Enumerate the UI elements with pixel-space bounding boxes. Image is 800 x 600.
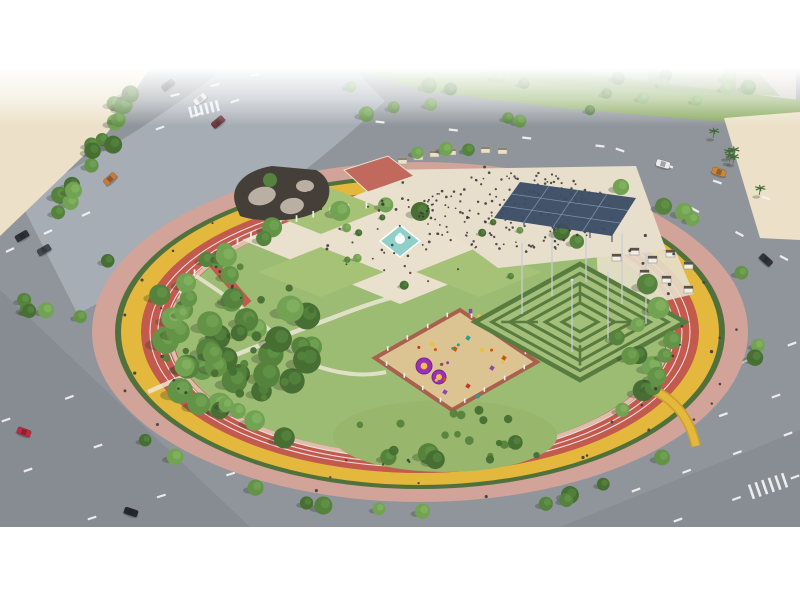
person-figure bbox=[211, 222, 213, 224]
person-figure bbox=[493, 236, 495, 238]
person-figure bbox=[480, 183, 482, 185]
tree-highlight bbox=[237, 327, 245, 335]
tree-highlight bbox=[263, 365, 276, 378]
person-figure bbox=[401, 181, 404, 184]
colonnade-post bbox=[250, 232, 252, 239]
person-figure bbox=[470, 176, 472, 178]
person-figure bbox=[307, 191, 310, 194]
playground-fence-post bbox=[446, 313, 448, 318]
tree-highlight bbox=[481, 230, 485, 234]
person-figure bbox=[423, 200, 425, 202]
person-figure bbox=[173, 379, 176, 382]
bush bbox=[211, 369, 219, 377]
person-figure bbox=[466, 235, 468, 237]
person-figure bbox=[427, 223, 429, 225]
tree-highlight bbox=[564, 495, 571, 502]
person-figure bbox=[463, 188, 466, 191]
light-pole-head bbox=[571, 279, 574, 282]
bush bbox=[504, 415, 512, 423]
person-figure bbox=[550, 182, 552, 184]
person-figure bbox=[711, 402, 713, 404]
person-figure bbox=[581, 456, 584, 459]
person-figure bbox=[508, 178, 510, 180]
child-figure bbox=[434, 348, 437, 351]
market-stall-roof bbox=[498, 148, 507, 150]
person-figure bbox=[491, 211, 493, 213]
person-figure bbox=[495, 243, 497, 245]
child-figure bbox=[417, 346, 420, 349]
person-figure bbox=[702, 281, 705, 284]
tree-highlight bbox=[210, 346, 220, 356]
person-figure bbox=[407, 255, 410, 258]
person-figure bbox=[554, 240, 557, 243]
tree-highlight bbox=[157, 287, 168, 298]
playground-fence-post bbox=[504, 376, 506, 381]
playground-fence-post bbox=[523, 365, 525, 370]
person-figure bbox=[495, 188, 497, 190]
tree-highlight bbox=[575, 236, 582, 243]
person-figure bbox=[401, 197, 404, 200]
playground-fence-post bbox=[403, 373, 405, 378]
person-figure bbox=[404, 265, 406, 267]
tree-highlight bbox=[544, 499, 551, 506]
person-figure bbox=[466, 232, 468, 234]
bush bbox=[450, 409, 458, 417]
tree-highlight bbox=[636, 320, 643, 327]
person-figure bbox=[436, 193, 438, 195]
child-figure bbox=[436, 372, 439, 375]
person-figure bbox=[460, 193, 462, 195]
child-figure bbox=[440, 363, 443, 366]
tree-highlight bbox=[519, 228, 522, 231]
person-figure bbox=[508, 189, 510, 191]
tree-highlight bbox=[186, 292, 195, 301]
tree-highlight bbox=[262, 233, 270, 241]
bush bbox=[286, 284, 293, 291]
horizon-haze bbox=[0, 68, 800, 126]
person-figure bbox=[516, 177, 519, 180]
person-figure bbox=[555, 248, 557, 250]
bush bbox=[261, 394, 267, 400]
cabana-roof bbox=[662, 276, 671, 279]
tree-highlight bbox=[206, 315, 219, 328]
person-figure bbox=[450, 239, 452, 241]
rendering-band bbox=[0, 54, 800, 527]
tree-highlight bbox=[44, 304, 52, 312]
person-figure bbox=[422, 216, 424, 218]
tree-highlight bbox=[173, 451, 181, 459]
tree-highlight bbox=[644, 277, 654, 287]
person-figure bbox=[429, 233, 431, 235]
tree-highlight bbox=[756, 341, 763, 348]
person-figure bbox=[441, 234, 443, 236]
person-figure bbox=[243, 192, 245, 194]
person-figure bbox=[575, 183, 577, 185]
playground-fence-post bbox=[471, 313, 473, 318]
person-figure bbox=[326, 244, 329, 247]
person-figure bbox=[491, 215, 493, 217]
letterbox-top bbox=[0, 0, 800, 68]
child-figure bbox=[446, 361, 449, 364]
cabana-roof bbox=[648, 256, 657, 259]
person-figure bbox=[172, 250, 175, 253]
person-figure bbox=[543, 240, 545, 242]
person-figure bbox=[515, 241, 517, 243]
person-figure bbox=[668, 283, 671, 286]
bush bbox=[486, 455, 494, 463]
palm-shadow bbox=[752, 195, 760, 198]
person-figure bbox=[338, 228, 340, 230]
person-figure bbox=[508, 229, 510, 231]
playground-fence-post bbox=[427, 324, 429, 329]
person-figure bbox=[457, 268, 459, 270]
bush bbox=[183, 348, 189, 354]
tree-highlight bbox=[236, 405, 244, 413]
person-figure bbox=[408, 236, 411, 239]
cabana-roof bbox=[640, 270, 649, 273]
person-figure bbox=[586, 234, 588, 236]
person-figure bbox=[417, 482, 419, 484]
person-figure bbox=[409, 272, 411, 274]
person-figure bbox=[446, 231, 448, 233]
tree-highlight bbox=[510, 274, 513, 277]
playground-fence-post bbox=[407, 335, 409, 340]
person-figure bbox=[351, 241, 353, 243]
person-figure bbox=[441, 190, 444, 193]
tree-highlight bbox=[619, 181, 627, 189]
playground-fence-post bbox=[464, 398, 466, 403]
person-figure bbox=[124, 389, 127, 392]
person-figure bbox=[485, 495, 488, 498]
person-figure bbox=[562, 239, 565, 242]
tree-highlight bbox=[433, 453, 442, 462]
person-figure bbox=[469, 210, 471, 212]
person-figure bbox=[546, 181, 548, 183]
tree-highlight bbox=[253, 482, 261, 490]
person-figure bbox=[470, 244, 472, 246]
tree-highlight bbox=[663, 350, 670, 357]
person-figure bbox=[710, 350, 713, 353]
bush bbox=[246, 316, 255, 325]
tree-highlight bbox=[337, 204, 347, 214]
playground-fence-post bbox=[422, 386, 424, 391]
person-figure bbox=[427, 201, 429, 203]
person-figure bbox=[450, 195, 452, 197]
person-figure bbox=[490, 234, 492, 236]
person-figure bbox=[427, 207, 429, 209]
tree-highlight bbox=[281, 430, 292, 441]
tree-highlight bbox=[403, 282, 408, 287]
bush bbox=[357, 422, 364, 429]
tree-highlight bbox=[230, 291, 241, 302]
person-figure bbox=[422, 244, 424, 246]
colonnade-post bbox=[237, 238, 239, 245]
tree-highlight bbox=[740, 268, 747, 275]
person-figure bbox=[381, 202, 384, 205]
garden-tree bbox=[263, 173, 277, 187]
tree-highlight bbox=[71, 184, 80, 193]
person-figure bbox=[464, 221, 466, 223]
tree-highlight bbox=[289, 372, 302, 385]
person-figure bbox=[532, 244, 534, 246]
person-figure bbox=[535, 175, 537, 177]
person-figure bbox=[667, 292, 670, 295]
person-figure bbox=[177, 387, 180, 390]
person-figure bbox=[719, 383, 722, 386]
person-figure bbox=[123, 314, 126, 317]
bush bbox=[308, 307, 314, 313]
bush bbox=[475, 406, 484, 415]
tree-highlight bbox=[381, 215, 384, 218]
tree-highlight bbox=[22, 295, 29, 302]
person-figure bbox=[611, 421, 614, 424]
bush bbox=[252, 331, 262, 341]
tree-highlight bbox=[182, 359, 192, 369]
person-figure bbox=[444, 204, 446, 206]
person-figure bbox=[544, 178, 546, 180]
person-figure bbox=[628, 249, 631, 252]
person-figure bbox=[499, 204, 501, 206]
person-figure bbox=[407, 199, 409, 201]
cabana-roof bbox=[684, 262, 693, 265]
tree-highlight bbox=[444, 144, 451, 151]
tree-highlight bbox=[305, 498, 312, 505]
tree-highlight bbox=[660, 452, 668, 460]
tree-highlight bbox=[358, 230, 362, 234]
colonnade-post bbox=[296, 215, 298, 222]
person-figure bbox=[432, 195, 434, 197]
tree-highlight bbox=[377, 504, 383, 510]
person-figure bbox=[572, 180, 575, 183]
person-figure bbox=[435, 199, 437, 201]
playground-fence-post bbox=[387, 346, 389, 351]
person-figure bbox=[231, 285, 234, 288]
tree-highlight bbox=[345, 225, 349, 229]
tree-highlight bbox=[690, 214, 697, 221]
person-figure bbox=[561, 182, 563, 184]
person-figure bbox=[381, 249, 384, 252]
person-figure bbox=[654, 387, 657, 390]
tree-highlight bbox=[416, 148, 422, 154]
person-figure bbox=[533, 179, 535, 181]
bush bbox=[389, 446, 399, 456]
person-figure bbox=[644, 234, 647, 237]
palm-shadow bbox=[722, 163, 730, 166]
person-figure bbox=[428, 199, 430, 201]
person-figure bbox=[160, 307, 162, 309]
person-figure bbox=[133, 371, 136, 374]
person-figure bbox=[431, 209, 434, 212]
cabana-roof bbox=[684, 286, 693, 289]
person-figure bbox=[488, 171, 491, 174]
person-figure bbox=[513, 175, 515, 177]
cabana-roof bbox=[612, 254, 621, 257]
person-figure bbox=[491, 200, 494, 203]
tree-highlight bbox=[224, 399, 232, 407]
market-stall-roof bbox=[398, 158, 407, 160]
person-figure bbox=[325, 248, 328, 251]
person-figure bbox=[444, 215, 446, 217]
person-figure bbox=[510, 172, 512, 174]
tree-highlight bbox=[615, 332, 623, 340]
person-figure bbox=[672, 355, 675, 358]
child-figure bbox=[490, 349, 493, 352]
tree-highlight bbox=[223, 248, 234, 259]
tree-highlight bbox=[513, 437, 520, 444]
person-figure bbox=[483, 178, 485, 180]
person-figure bbox=[447, 206, 449, 208]
person-figure bbox=[427, 280, 429, 282]
tree-highlight bbox=[275, 330, 288, 343]
tree-highlight bbox=[655, 300, 666, 311]
person-figure bbox=[679, 344, 681, 346]
person-figure bbox=[432, 203, 434, 205]
bush bbox=[163, 354, 171, 362]
person-figure bbox=[455, 207, 457, 209]
person-figure bbox=[718, 337, 720, 339]
person-figure bbox=[438, 193, 440, 195]
person-figure bbox=[681, 325, 684, 328]
person-figure bbox=[399, 225, 401, 227]
garden-rock bbox=[296, 180, 314, 192]
person-figure bbox=[215, 266, 218, 269]
market-stall-roof bbox=[481, 147, 490, 149]
person-figure bbox=[446, 226, 448, 228]
tree-highlight bbox=[78, 312, 85, 319]
person-figure bbox=[378, 209, 381, 212]
person-figure bbox=[367, 206, 369, 208]
person-figure bbox=[488, 217, 490, 219]
fountain-jet-top bbox=[398, 233, 402, 237]
child-figure bbox=[443, 378, 446, 381]
person-figure bbox=[551, 173, 553, 175]
person-figure bbox=[537, 172, 539, 174]
person-figure bbox=[586, 454, 589, 457]
person-figure bbox=[515, 177, 517, 179]
tree-highlight bbox=[227, 268, 236, 277]
person-figure bbox=[430, 217, 433, 220]
person-figure bbox=[383, 252, 385, 254]
person-figure bbox=[428, 240, 431, 243]
child-figure bbox=[451, 347, 454, 350]
tree-highlight bbox=[180, 308, 187, 315]
person-figure bbox=[459, 200, 461, 202]
tree-highlight bbox=[321, 499, 330, 508]
tree-highlight bbox=[89, 160, 96, 167]
fence-banner bbox=[469, 309, 473, 314]
playground-fence-post bbox=[386, 361, 388, 366]
person-figure bbox=[516, 245, 518, 247]
person-figure bbox=[510, 222, 512, 224]
person-figure bbox=[381, 200, 383, 202]
person-figure bbox=[427, 205, 429, 207]
bush bbox=[265, 336, 273, 344]
child-figure bbox=[501, 361, 504, 364]
bush bbox=[240, 360, 248, 368]
tree-highlight bbox=[56, 207, 63, 214]
tree-highlight bbox=[670, 334, 679, 343]
person-figure bbox=[426, 210, 428, 212]
person-figure bbox=[408, 461, 410, 463]
person-figure bbox=[549, 230, 551, 232]
person-figure bbox=[395, 208, 398, 211]
person-figure bbox=[557, 177, 559, 179]
person-figure bbox=[555, 175, 557, 177]
person-figure bbox=[495, 196, 497, 198]
tree-highlight bbox=[27, 306, 34, 313]
bush bbox=[479, 416, 487, 424]
tree-highlight bbox=[628, 349, 637, 358]
tree-highlight bbox=[196, 396, 207, 407]
person-figure bbox=[393, 252, 395, 254]
bush bbox=[465, 436, 474, 445]
person-figure bbox=[735, 328, 738, 331]
person-figure bbox=[693, 418, 696, 421]
person-figure bbox=[500, 178, 502, 180]
child-figure bbox=[457, 343, 460, 346]
person-figure bbox=[436, 232, 439, 235]
tree-highlight bbox=[467, 145, 473, 151]
bush bbox=[235, 389, 244, 398]
bush bbox=[257, 296, 265, 304]
bush bbox=[253, 392, 261, 400]
person-figure bbox=[462, 212, 464, 214]
bush bbox=[533, 452, 539, 458]
tree-highlight bbox=[420, 506, 428, 514]
bush bbox=[237, 263, 244, 270]
person-figure bbox=[329, 476, 331, 478]
person-figure bbox=[484, 202, 487, 205]
light-pole-head bbox=[645, 251, 648, 254]
architectural-rendering bbox=[0, 0, 800, 600]
playground-fence-post bbox=[440, 398, 442, 403]
person-figure bbox=[408, 206, 410, 208]
person-figure bbox=[383, 269, 385, 271]
person-figure bbox=[672, 253, 675, 256]
person-figure bbox=[140, 278, 143, 281]
person-figure bbox=[576, 234, 579, 237]
person-figure bbox=[467, 216, 469, 218]
person-figure bbox=[544, 182, 547, 185]
bush bbox=[297, 352, 306, 361]
tree-highlight bbox=[492, 220, 495, 223]
person-figure bbox=[484, 221, 487, 224]
light-pole-head bbox=[607, 269, 610, 272]
person-figure bbox=[477, 213, 479, 215]
tree-highlight bbox=[384, 199, 392, 207]
bush bbox=[281, 378, 289, 386]
person-figure bbox=[647, 429, 650, 432]
person-figure bbox=[525, 250, 528, 253]
tree-highlight bbox=[601, 480, 607, 486]
tree-highlight bbox=[356, 255, 360, 259]
person-figure bbox=[498, 247, 501, 250]
tree-highlight bbox=[106, 256, 113, 263]
tree-highlight bbox=[111, 138, 120, 147]
letterbox-bottom bbox=[0, 527, 800, 600]
person-figure bbox=[512, 226, 514, 228]
person-figure bbox=[422, 212, 424, 214]
bush bbox=[229, 367, 238, 376]
bush bbox=[396, 420, 404, 428]
palm-shadow bbox=[706, 138, 714, 141]
person-figure bbox=[418, 215, 420, 217]
cabana-roof bbox=[666, 250, 675, 253]
person-figure bbox=[477, 201, 479, 203]
person-figure bbox=[503, 199, 505, 201]
person-figure bbox=[345, 459, 347, 461]
tree-highlight bbox=[620, 405, 627, 412]
